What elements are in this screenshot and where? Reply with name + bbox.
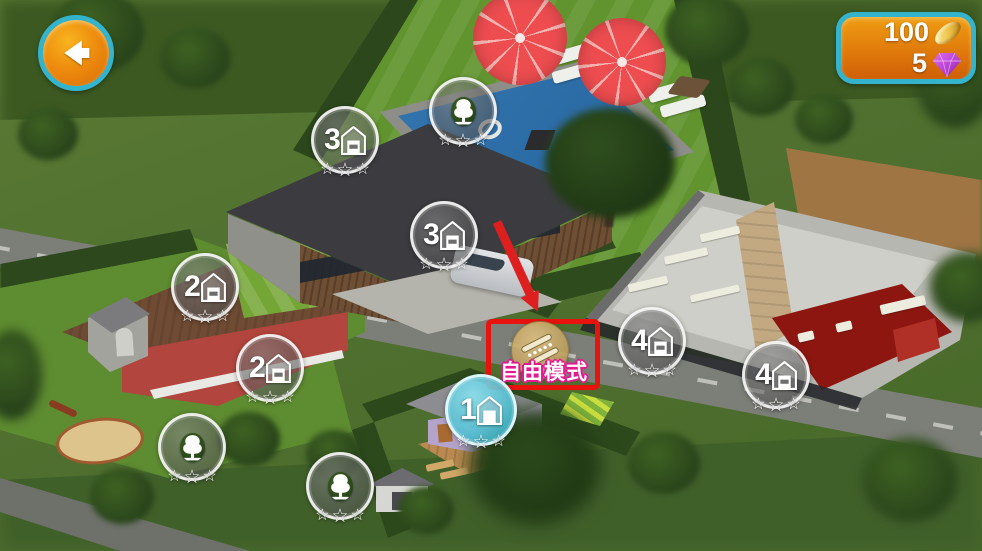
- game-screen: 自由模式 3 ☆☆☆ 3: [0, 0, 982, 551]
- house-icon: [341, 126, 366, 155]
- badge-level-number: 2: [184, 272, 200, 302]
- star-outline-icon: ☆: [196, 307, 213, 328]
- star-outline-icon: ☆: [261, 388, 278, 409]
- badge-stars: ☆☆☆: [612, 360, 692, 379]
- star-outline-icon: ☆: [419, 256, 433, 273]
- star-outline-icon: ☆: [438, 132, 452, 149]
- star-outline-icon: ☆: [455, 256, 469, 273]
- star-outline-icon: ☆: [751, 396, 765, 413]
- badge-stars: ☆☆☆: [165, 306, 245, 325]
- star-outline-icon: ☆: [627, 362, 641, 379]
- level-badge[interactable]: 3 ☆☆☆: [423, 77, 503, 149]
- star-outline-icon: ☆: [183, 467, 200, 488]
- gem-amount: 5: [912, 48, 927, 79]
- badge-stars: ☆☆☆: [300, 505, 380, 524]
- star-outline-icon: ☆: [454, 131, 471, 152]
- badge-level-number: 3: [324, 125, 340, 155]
- star-outline-icon: ☆: [643, 361, 660, 382]
- house-icon: [440, 221, 465, 250]
- star-outline-icon: ☆: [315, 507, 329, 524]
- star-outline-icon: ☆: [351, 507, 365, 524]
- gem-icon: [931, 50, 963, 78]
- star-outline-icon: ☆: [336, 160, 353, 181]
- star-outline-icon: ☆: [492, 433, 506, 450]
- level-badge[interactable]: 3 ☆☆☆: [305, 106, 385, 178]
- badge-stars: ☆☆☆: [230, 387, 310, 406]
- star-outline-icon: ☆: [180, 308, 194, 325]
- star-outline-icon: ☆: [435, 255, 452, 276]
- level-badge[interactable]: 4 ☆☆☆: [736, 341, 816, 413]
- star-outline-icon: ☆: [767, 395, 784, 416]
- house-icon: [477, 396, 502, 425]
- star-outline-icon: ☆: [472, 432, 489, 453]
- level-badge[interactable]: 2 ☆☆☆: [152, 413, 232, 485]
- star-outline-icon: ☆: [281, 389, 295, 406]
- star-outline-icon: ☆: [245, 389, 259, 406]
- house-icon: [648, 327, 673, 356]
- badge-stars: ☆☆☆: [305, 159, 385, 178]
- tree-icon: [328, 472, 353, 501]
- tree-icon: [180, 433, 205, 462]
- badge-level-number: 4: [631, 326, 647, 356]
- level-badge-layer: 3 ☆☆☆ 3: [0, 0, 982, 551]
- house-icon: [266, 354, 291, 383]
- star-outline-icon: ☆: [663, 362, 677, 379]
- gem-row: 5: [845, 48, 963, 79]
- level-badge[interactable]: 3 ☆☆☆: [404, 201, 484, 273]
- level-badge[interactable]: 2 ☆☆☆: [230, 334, 310, 406]
- level-badge[interactable]: 4 ☆☆☆: [612, 307, 692, 379]
- back-button[interactable]: [38, 15, 114, 91]
- tree-icon: [451, 97, 476, 126]
- coin-icon: [931, 17, 964, 48]
- badge-level-number: 2: [249, 353, 265, 383]
- badge-level-number: 1: [460, 395, 476, 425]
- badge-stars: ☆☆☆: [441, 431, 521, 450]
- house-icon: [201, 273, 226, 302]
- level-badge[interactable]: 2 ☆☆☆: [165, 253, 245, 325]
- coin-amount: 100: [884, 17, 929, 48]
- badge-stars: ☆☆☆: [404, 254, 484, 273]
- star-outline-icon: ☆: [456, 433, 470, 450]
- house-icon: [772, 361, 797, 390]
- star-outline-icon: ☆: [216, 308, 230, 325]
- badge-level-number: 4: [755, 360, 771, 390]
- star-outline-icon: ☆: [787, 396, 801, 413]
- level-badge[interactable]: 1 ☆☆☆: [300, 452, 380, 524]
- star-outline-icon: ☆: [331, 506, 348, 527]
- badge-stars: ☆☆☆: [736, 394, 816, 413]
- star-outline-icon: ☆: [203, 468, 217, 485]
- star-outline-icon: ☆: [474, 132, 488, 149]
- star-outline-icon: ☆: [356, 161, 370, 178]
- level-badge[interactable]: 1 ☆☆☆: [441, 374, 521, 450]
- star-outline-icon: ☆: [167, 468, 181, 485]
- currency-panel[interactable]: 100 5: [836, 12, 976, 84]
- badge-level-number: 3: [423, 220, 439, 250]
- coin-row: 100: [845, 17, 963, 48]
- badge-stars: ☆☆☆: [423, 130, 503, 149]
- back-arrow-icon: [56, 33, 96, 73]
- star-outline-icon: ☆: [320, 161, 334, 178]
- badge-stars: ☆☆☆: [152, 466, 232, 485]
